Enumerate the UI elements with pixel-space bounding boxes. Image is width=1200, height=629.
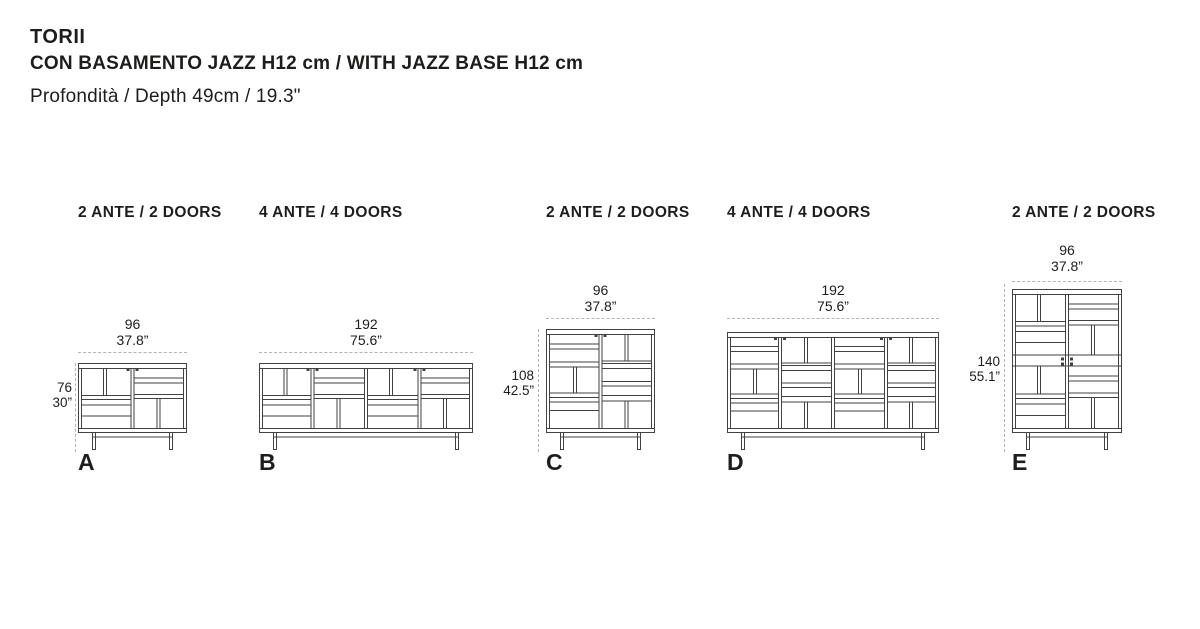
height-cm: 140 bbox=[950, 355, 1000, 370]
cabinet-d-doors-header: 4 ANTE / 4 DOORS bbox=[727, 204, 871, 222]
cabinet-e-height-dimension: 140 55.1” bbox=[950, 355, 1000, 384]
width-cm: 96 bbox=[546, 283, 655, 299]
cabinet-d-label: D bbox=[727, 449, 744, 476]
height-cm: 76 bbox=[22, 381, 72, 396]
cabinet-c-height-measure-line bbox=[538, 329, 539, 452]
spec-sheet: TORII CON BASAMENTO JAZZ H12 cm / WITH J… bbox=[0, 0, 1200, 629]
width-in: 37.8” bbox=[1012, 259, 1122, 275]
cabinet-c-drawing bbox=[546, 329, 657, 452]
width-in: 37.8” bbox=[546, 299, 655, 315]
width-cm: 96 bbox=[1012, 243, 1122, 259]
width-in: 75.6” bbox=[727, 299, 939, 315]
cabinet-a-width-measure-line bbox=[78, 352, 187, 353]
cabinet-b-drawing bbox=[259, 363, 475, 452]
cabinet-a-label: A bbox=[78, 449, 95, 476]
cabinet-c-label: C bbox=[546, 449, 563, 476]
cabinet-c-width-measure-line bbox=[546, 318, 655, 319]
cabinet-b-width-measure-line bbox=[259, 352, 473, 353]
cabinet-c-width-dimension: 96 37.8” bbox=[546, 283, 655, 314]
cabinet-d-width-measure-line bbox=[727, 318, 939, 319]
width-cm: 192 bbox=[259, 317, 473, 333]
cabinet-a-height-dimension: 76 30” bbox=[22, 381, 72, 410]
depth-subtitle: Profondità / Depth 49cm / 19.3" bbox=[30, 86, 301, 108]
height-cm: 108 bbox=[484, 369, 534, 384]
cabinet-c-height-dimension: 108 42.5” bbox=[484, 369, 534, 398]
cabinet-e-height-measure-line bbox=[1004, 284, 1005, 452]
cabinet-e-drawing bbox=[1012, 289, 1124, 452]
product-title: TORII bbox=[30, 26, 85, 49]
cabinet-d-width-dimension: 192 75.6” bbox=[727, 283, 939, 314]
cabinet-e-width-dimension: 96 37.8” bbox=[1012, 243, 1122, 274]
width-in: 37.8” bbox=[78, 333, 187, 349]
cabinet-a-drawing bbox=[78, 363, 189, 452]
cabinet-a-height-measure-line bbox=[75, 363, 76, 452]
height-in: 30” bbox=[22, 396, 72, 411]
cabinet-c-doors-header: 2 ANTE / 2 DOORS bbox=[546, 204, 690, 222]
width-cm: 192 bbox=[727, 283, 939, 299]
cabinet-a-width-dimension: 96 37.8” bbox=[78, 317, 187, 348]
cabinet-d-drawing bbox=[727, 332, 941, 452]
height-in: 55.1” bbox=[950, 370, 1000, 385]
cabinet-e-doors-header: 2 ANTE / 2 DOORS bbox=[1012, 204, 1156, 222]
cabinet-b-label: B bbox=[259, 449, 276, 476]
cabinet-e-label: E bbox=[1012, 449, 1027, 476]
cabinet-e-width-measure-line bbox=[1012, 281, 1122, 282]
base-subtitle: CON BASAMENTO JAZZ H12 cm / WITH JAZZ BA… bbox=[30, 53, 583, 75]
width-in: 75.6” bbox=[259, 333, 473, 349]
height-in: 42.5” bbox=[484, 384, 534, 399]
cabinet-b-width-dimension: 192 75.6” bbox=[259, 317, 473, 348]
cabinet-a-doors-header: 2 ANTE / 2 DOORS bbox=[78, 204, 222, 222]
cabinet-b-doors-header: 4 ANTE / 4 DOORS bbox=[259, 204, 403, 222]
width-cm: 96 bbox=[78, 317, 187, 333]
